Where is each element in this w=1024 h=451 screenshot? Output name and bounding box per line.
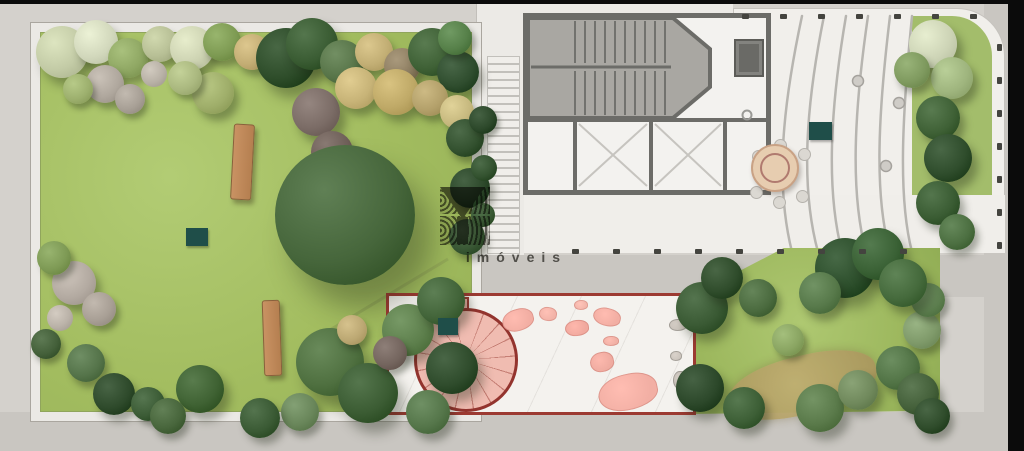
watermark-tagline: imóveis xyxy=(440,249,586,265)
building-walkway xyxy=(476,195,1005,253)
image-edge-top xyxy=(0,0,1024,4)
chair xyxy=(796,190,809,203)
site-plan: imóveis xyxy=(0,0,1024,451)
spiral-newel xyxy=(459,353,471,365)
chair xyxy=(773,196,786,209)
image-edge-right xyxy=(1008,0,1024,451)
chair xyxy=(798,148,811,161)
external-stair xyxy=(487,56,520,254)
round-table-ring xyxy=(760,153,790,183)
building-core xyxy=(523,13,771,195)
